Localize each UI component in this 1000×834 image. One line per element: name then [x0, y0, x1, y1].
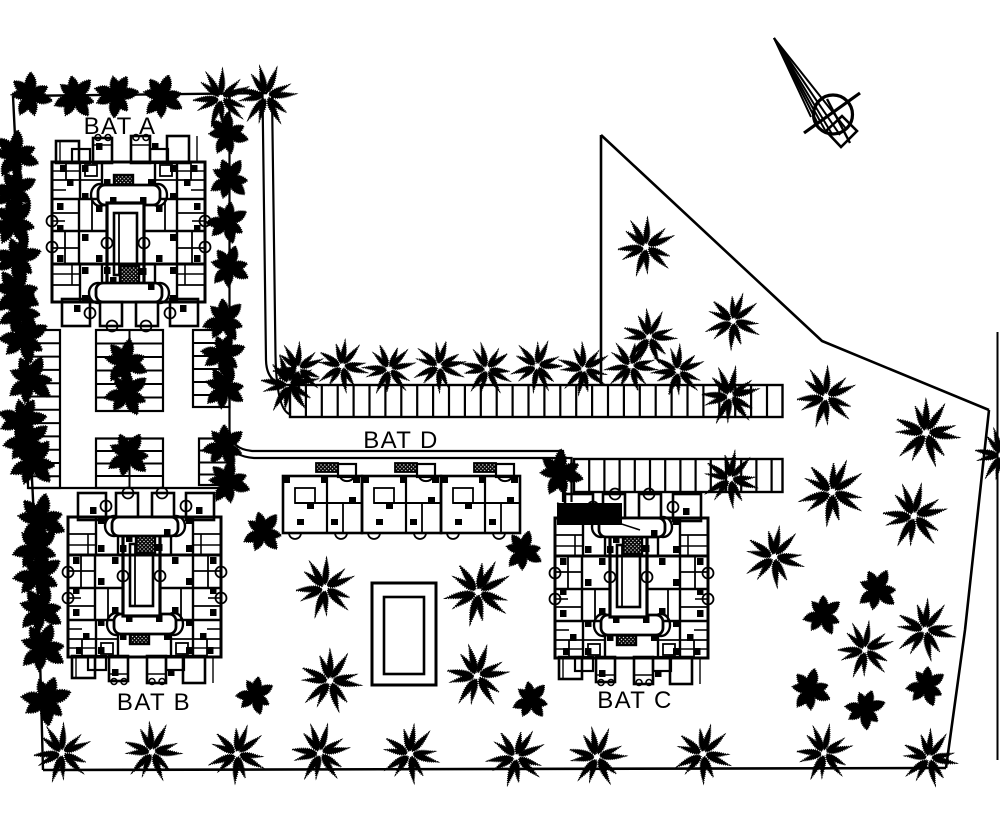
svg-text:BAT C: BAT C — [597, 687, 672, 714]
svg-text:BAT D: BAT D — [363, 427, 438, 454]
svg-text:BAT B: BAT B — [117, 689, 191, 716]
svg-text:BAT A: BAT A — [84, 113, 157, 140]
